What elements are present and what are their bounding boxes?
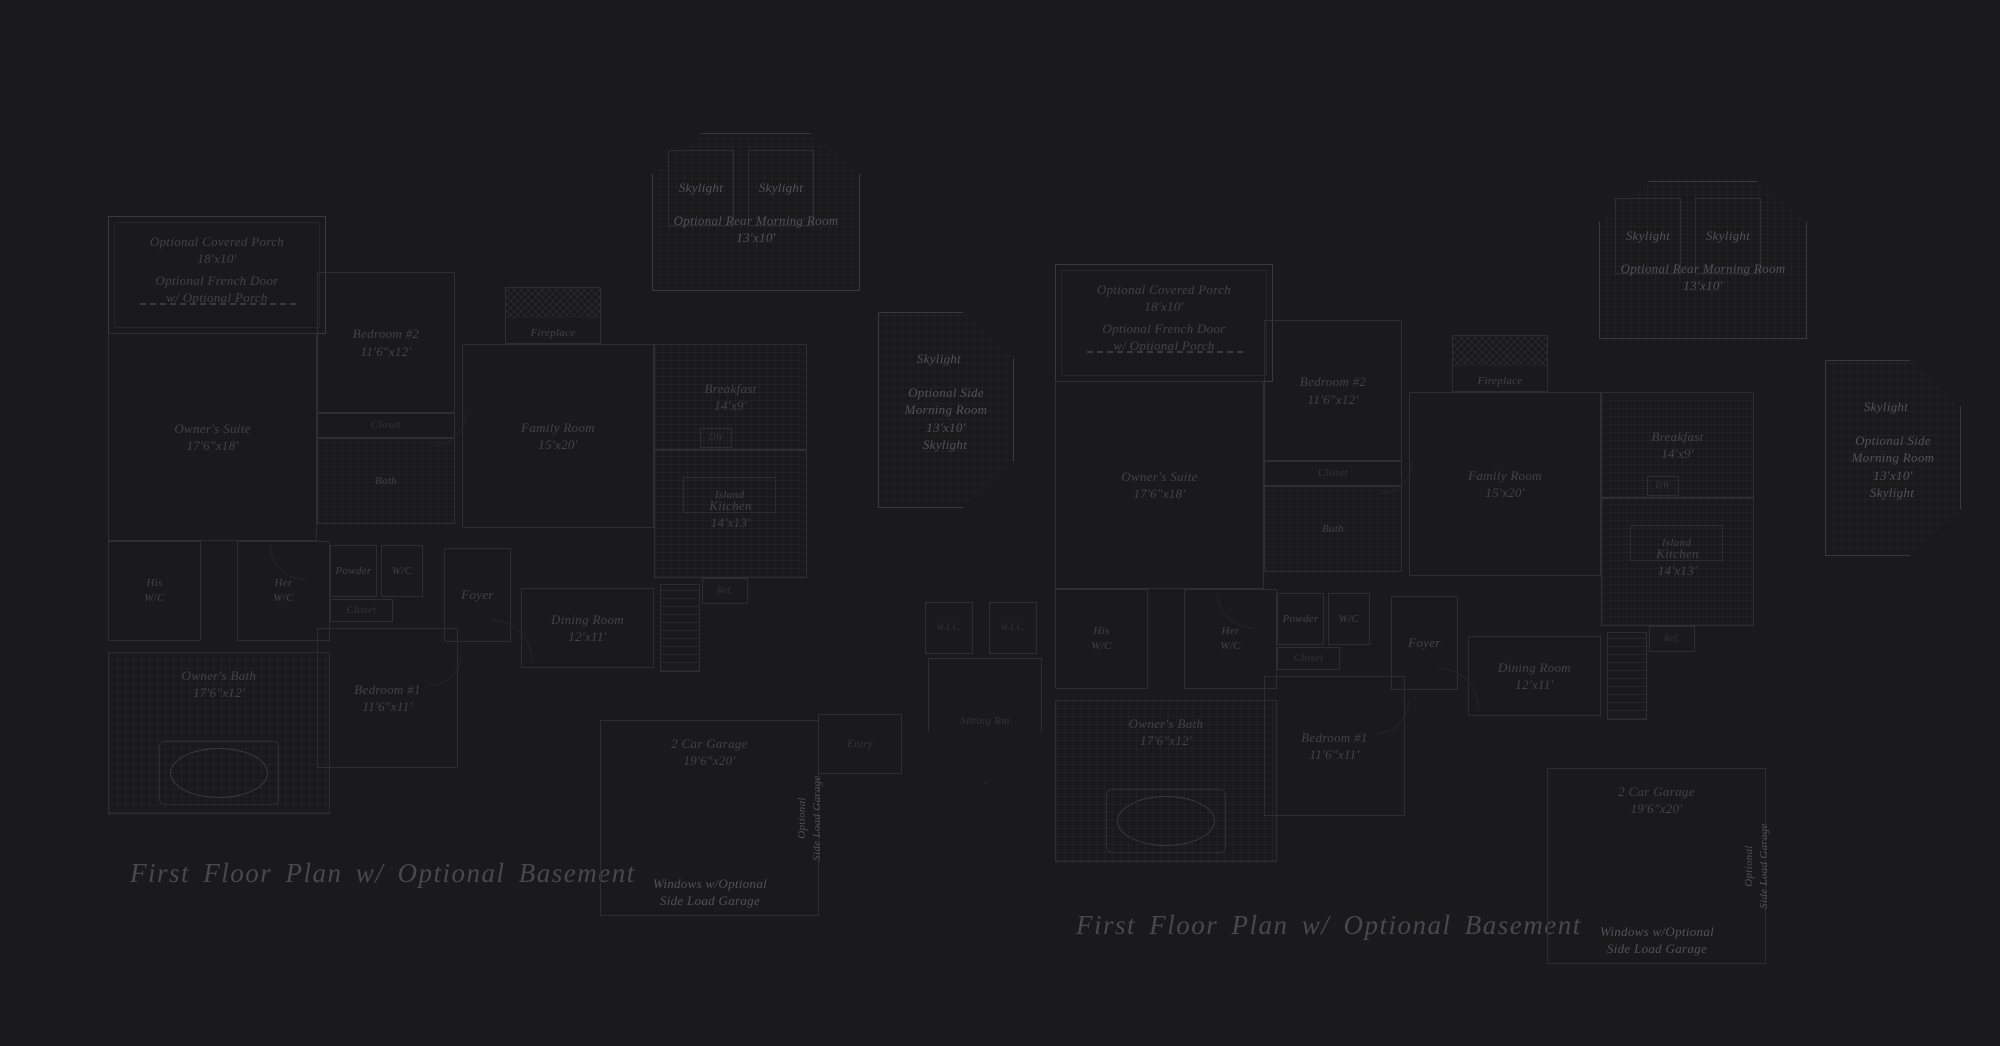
french-door-dash [1087,351,1243,353]
hall-closet: Closet [1277,647,1340,670]
right-plan: Optional Covered Porch18'x10'Optional Fr… [0,0,2000,1046]
his-wc: HisW/C [1055,589,1148,689]
floor-plan-sheet: First Floor Plan w/ Optional Basement Fi… [0,0,2000,1046]
bedroom-1: Bedroom #111'6"x11' [1264,676,1405,816]
owners-bath: Owner's Bath17'6"x12' [1055,700,1277,862]
garage-windows-note: Windows w/OptionalSide Load Garage [1555,924,1759,956]
side-skylight-top: Skylight [1843,398,1929,416]
family-room: Family Room15'x20' [1409,392,1601,576]
dishwasher: DW [1647,476,1679,496]
refrigerator: Ref. [1649,626,1695,652]
bedroom-2: Bedroom #211'6"x12' [1264,320,1402,461]
dining-room: Dining Room12'x11' [1468,636,1601,716]
covered-porch-label: Optional Covered Porch18'x10' [1065,282,1263,314]
french-door-note: Optional French Doorw/ Optional Porch [1065,322,1263,352]
floor-plan-sheet-body: { "canvas": { "background": "#1a191b", "… [0,0,2000,1046]
owners-suite: Owner's Suite17'6"x18' [1055,381,1264,589]
hall-wc: W/C [1328,593,1370,645]
side-morning-label: Optional SideMorning Room13'x10' [1831,434,1955,482]
side-load-garage-note: OptionalSide Load Garage [1707,816,1807,916]
powder: Powder [1277,593,1324,645]
stairs [1607,632,1647,720]
rear-morning-label: Optional Rear Morning Room13'x10' [1603,260,1803,294]
bath: Bath [1264,486,1402,572]
kitchen: Kitchen14'x13' [1601,498,1754,626]
fireplace: Fireplace [1452,335,1548,392]
side-skylight-bottom: Skylight [1849,484,1935,502]
island: Island [1630,525,1723,561]
